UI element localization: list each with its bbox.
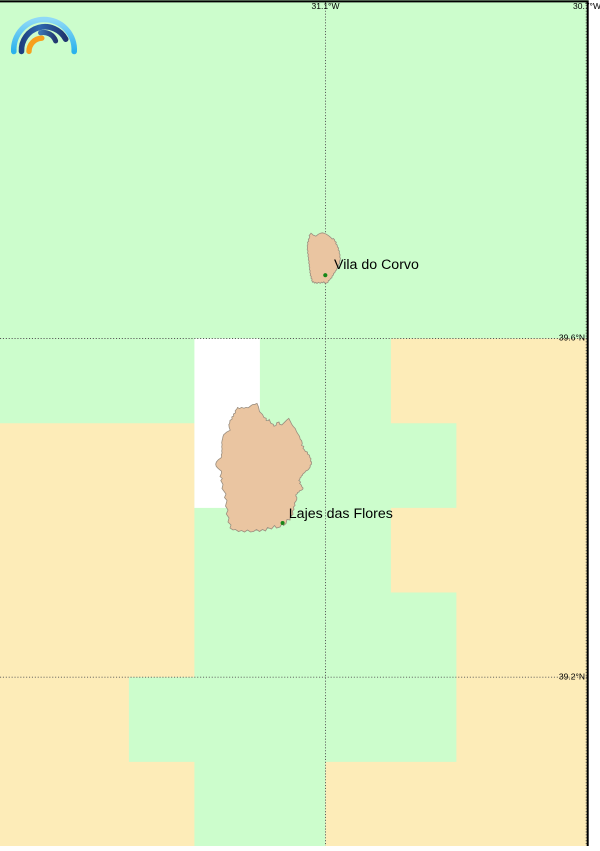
svg-text:Lajes das Flores: Lajes das Flores — [289, 506, 393, 522]
svg-text:39.2°N: 39.2°N — [559, 671, 585, 681]
svg-text:30.7°W: 30.7°W — [573, 1, 600, 11]
svg-text:31.1°W: 31.1°W — [312, 1, 340, 11]
svg-text:Vila do Corvo: Vila do Corvo — [334, 257, 419, 273]
svg-text:39.6°N: 39.6°N — [559, 333, 585, 343]
